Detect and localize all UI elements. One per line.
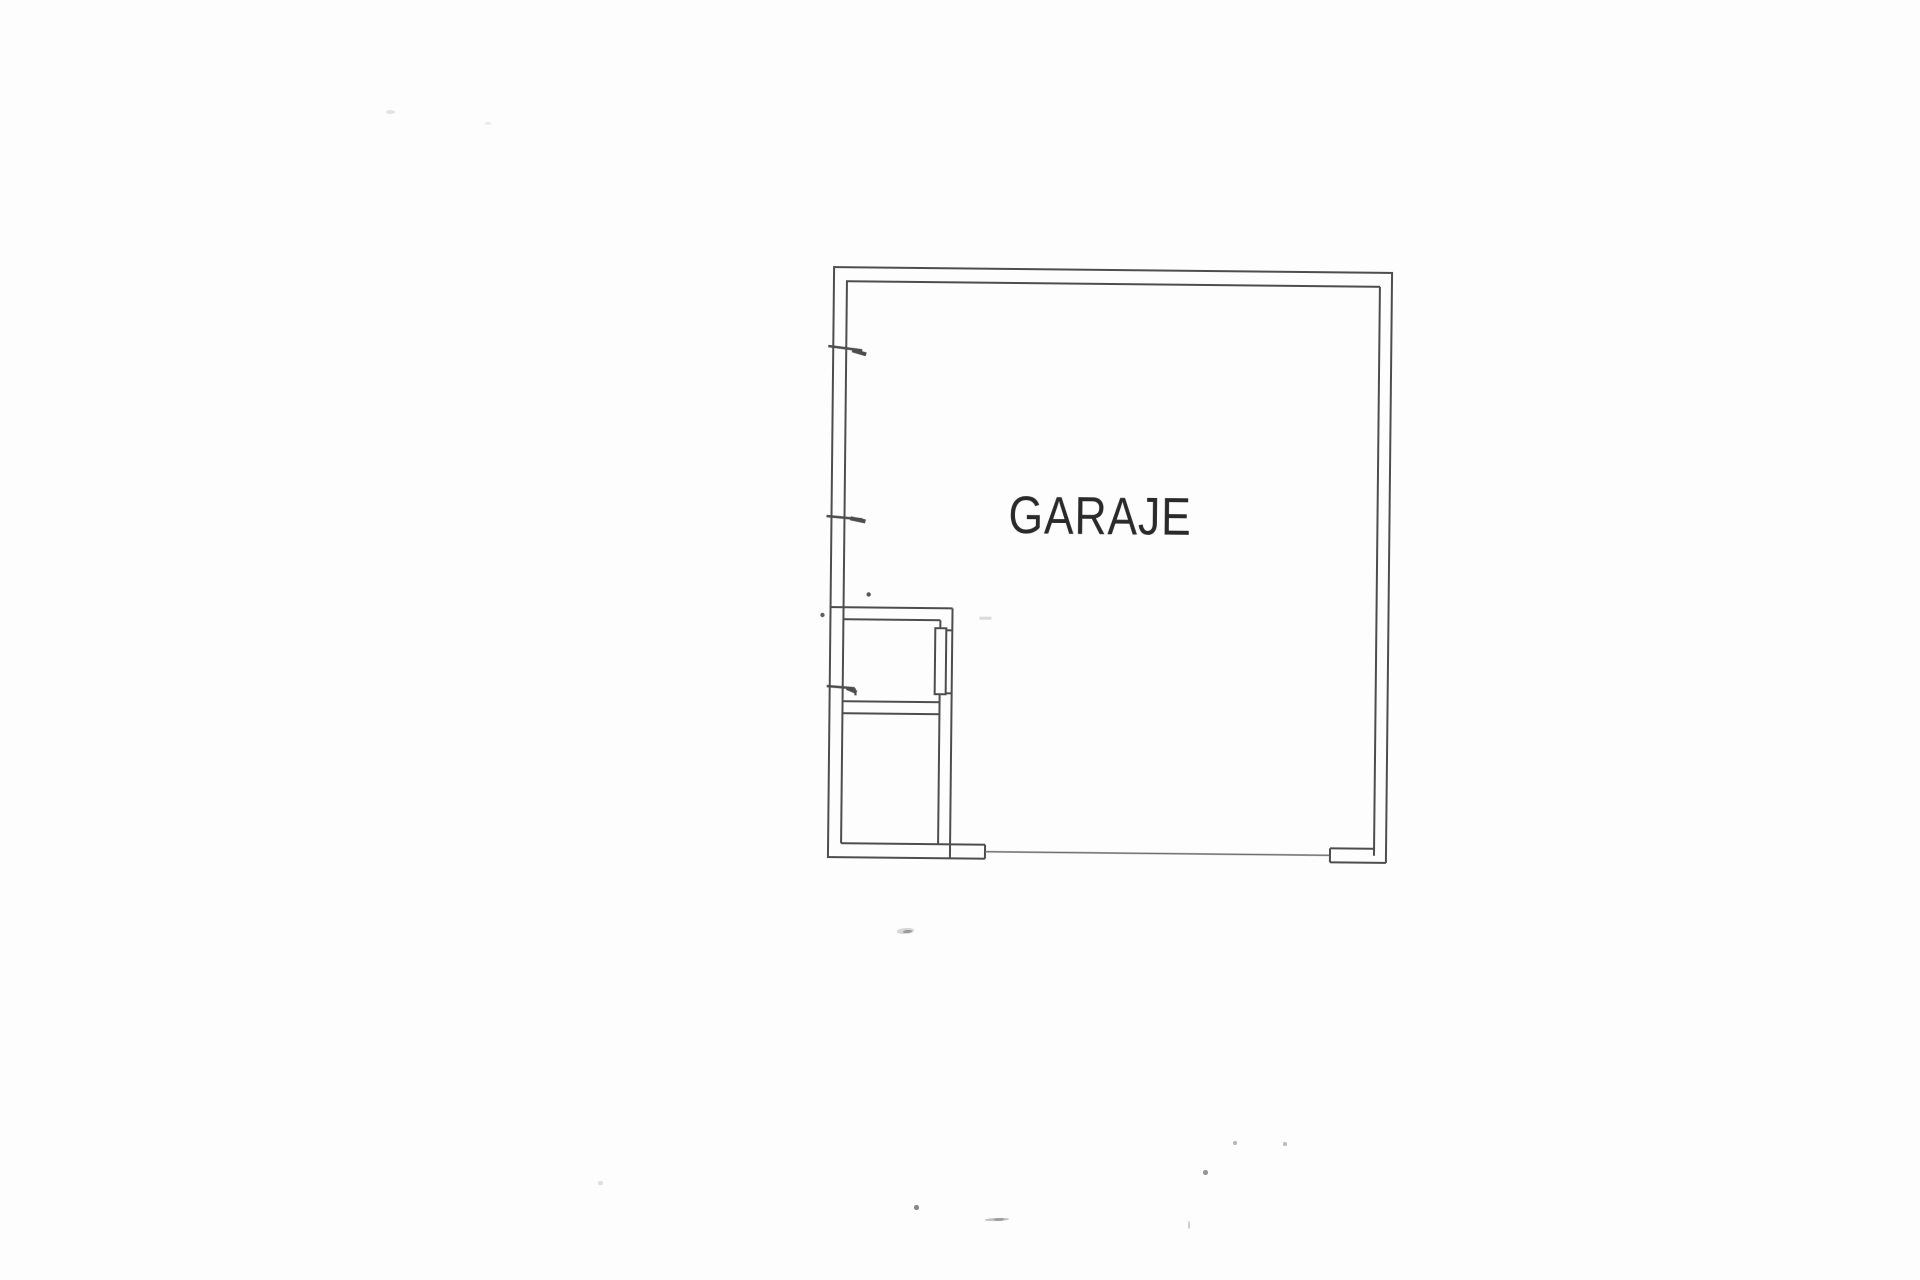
- floor-plan-drawing: [827, 266, 1393, 864]
- scan-speck: [598, 1181, 603, 1185]
- partition-wall-top-line: [843, 701, 940, 702]
- scan-speck: [1203, 1170, 1208, 1175]
- storage-top-wall-outer-line: [830, 607, 953, 608]
- scan-speck: [1283, 1142, 1287, 1146]
- scan-speck: [1188, 1221, 1190, 1229]
- storage-rooms-top-wall: [829, 607, 952, 620]
- wall-tick-1-hook: [852, 350, 866, 354]
- bottom-wall-left-outer-line: [828, 857, 985, 859]
- scan-speck: [386, 110, 395, 114]
- ink-dot-2: [820, 613, 824, 617]
- scan-speck: [485, 122, 491, 125]
- outer-wall-outline: [827, 266, 1393, 864]
- storage-right-wall-outer-line: [950, 608, 953, 858]
- partition-wall-bottom-line: [842, 713, 939, 714]
- outer-wall-right: [1386, 273, 1392, 863]
- ink-dots: [820, 592, 991, 620]
- storage-top-wall-inner-line: [843, 619, 940, 620]
- scan-speck: [914, 1205, 919, 1210]
- inner-wall-outline: [840, 281, 1380, 856]
- bottom-wall-right-outer-line: [1330, 862, 1386, 863]
- scanned-floor-plan-page: GARAJE: [0, 0, 1920, 1280]
- door-leaf: [935, 628, 947, 694]
- bottom-wall-left-inner-line: [841, 843, 985, 845]
- faint-dash: [979, 617, 991, 620]
- inner-wall-left: [841, 281, 847, 843]
- wall-tick-2-hook: [850, 518, 865, 521]
- outer-wall-left: [828, 266, 834, 858]
- inner-wall-right: [1374, 287, 1380, 856]
- garage-door-opening-line: [985, 852, 1330, 856]
- storage-rooms-partition-wall: [842, 701, 939, 714]
- storage-right-wall-inner-lower: [938, 693, 940, 844]
- bottom-wall-right-segment: [1330, 848, 1386, 863]
- scan-speck: [1233, 1141, 1237, 1145]
- ink-dot-1: [866, 592, 870, 596]
- outer-wall-top: [833, 267, 1393, 273]
- wall-tick-3-tail: [855, 688, 856, 695]
- bottom-wall-left-segment: [828, 843, 985, 859]
- room-label-garaje: GARAJE: [1008, 489, 1192, 544]
- garage-floor-plan: GARAJE: [827, 266, 1393, 864]
- inner-wall-top: [846, 281, 1380, 287]
